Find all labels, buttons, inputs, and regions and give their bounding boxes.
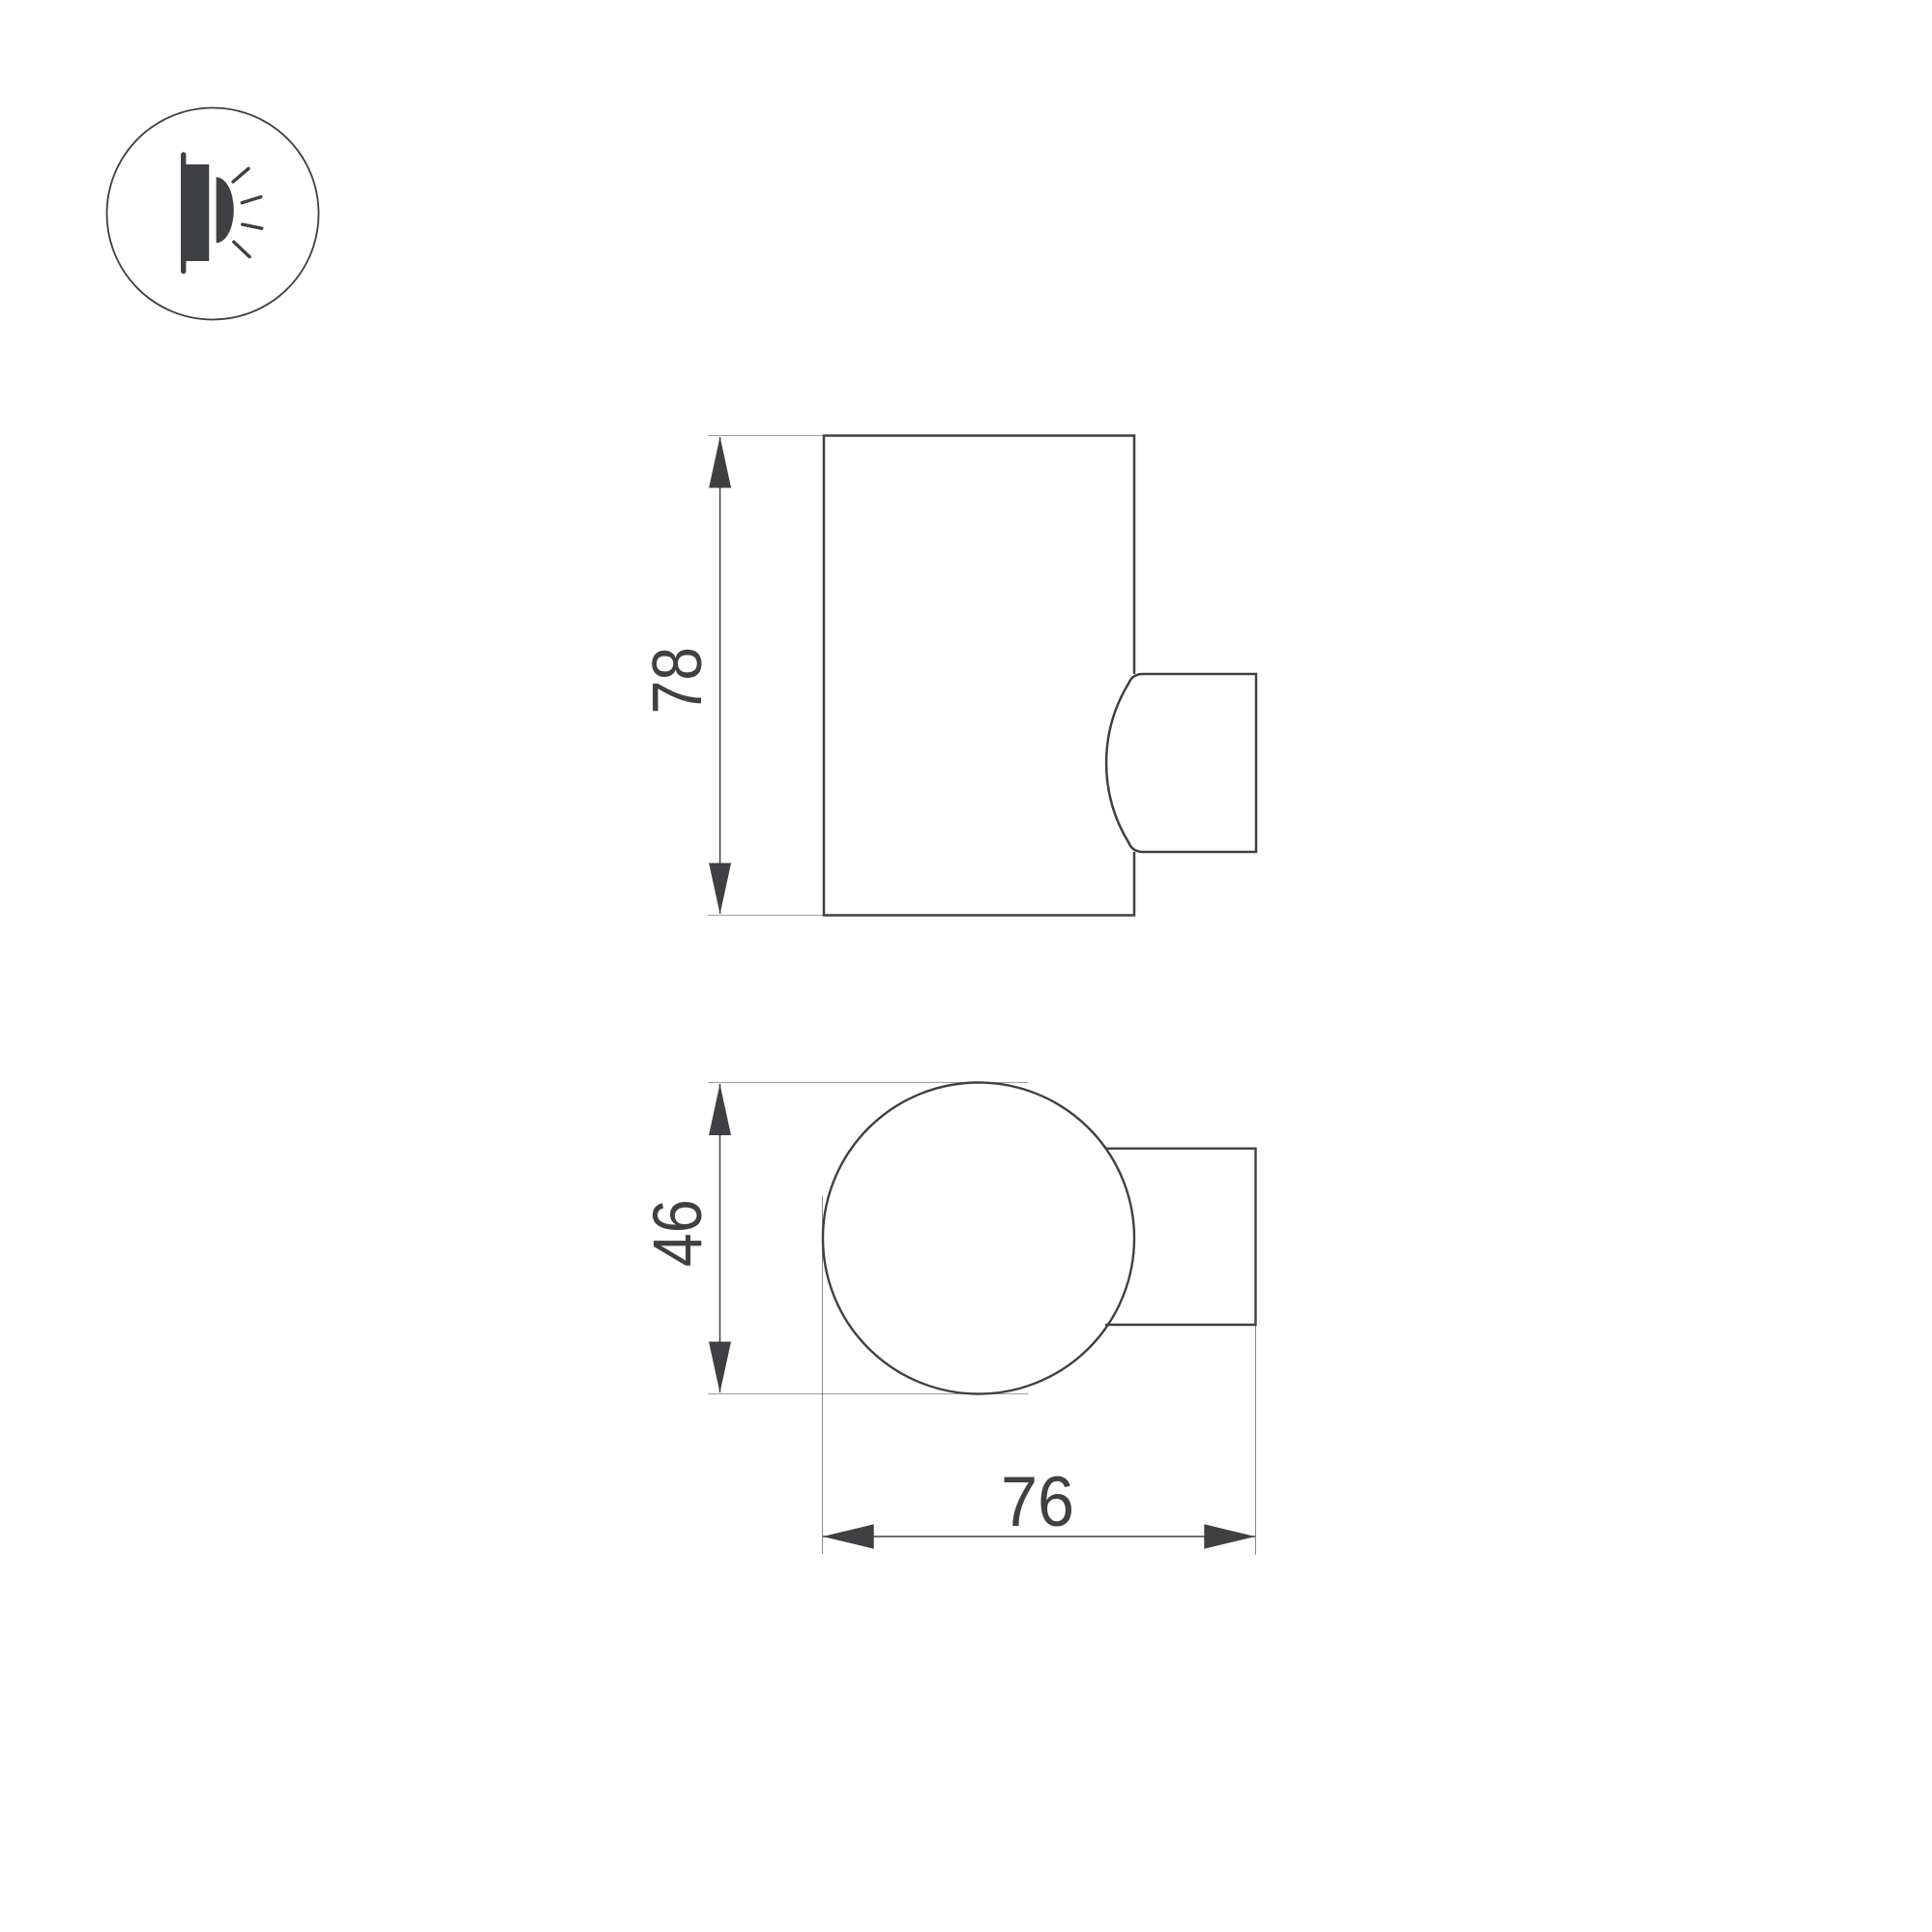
svg-text:46: 46 [640,1199,717,1267]
svg-text:76: 76 [1001,1462,1074,1541]
svg-text:78: 78 [638,647,717,715]
